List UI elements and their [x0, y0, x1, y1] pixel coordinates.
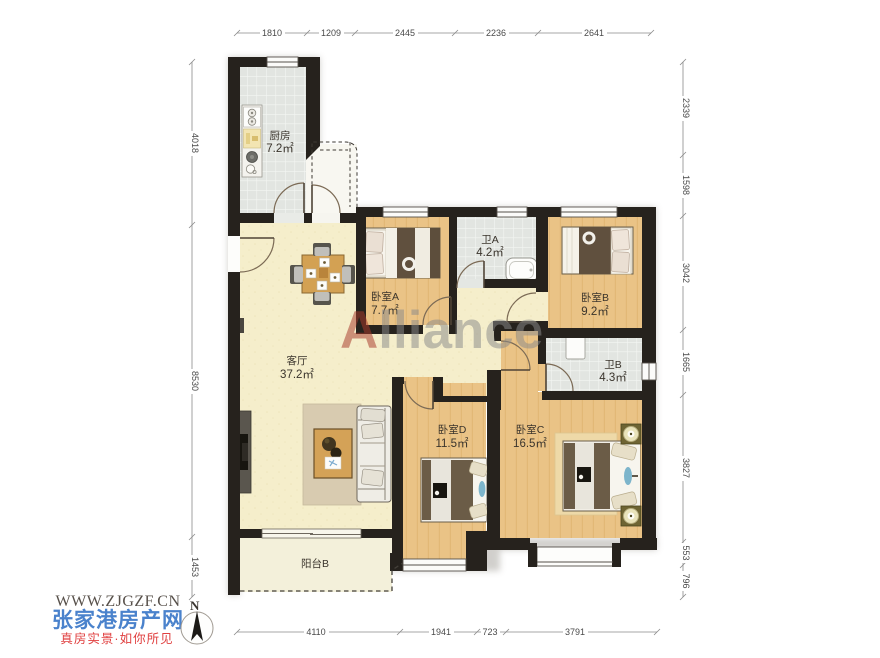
svg-text:厨房: 厨房 [270, 129, 291, 142]
svg-text:卫A: 卫A [481, 234, 499, 246]
svg-text:3827: 3827 [681, 458, 691, 478]
svg-text:1665: 1665 [681, 352, 691, 372]
svg-text:2445: 2445 [395, 28, 415, 38]
svg-text:卧室D: 卧室D [438, 423, 467, 436]
svg-text:4018: 4018 [190, 133, 200, 153]
svg-text:9.2㎡: 9.2㎡ [581, 305, 609, 318]
svg-text:4.2㎡: 4.2㎡ [476, 246, 504, 259]
svg-text:1453: 1453 [190, 557, 200, 577]
svg-text:16.5㎡: 16.5㎡ [513, 437, 547, 450]
svg-text:37.2㎡: 37.2㎡ [280, 368, 314, 381]
svg-text:N: N [190, 598, 200, 613]
svg-text:2236: 2236 [486, 28, 506, 38]
svg-text:张家港房产网: 张家港房产网 [52, 608, 184, 632]
svg-text:卧室B: 卧室B [581, 291, 609, 304]
svg-text:Alliance: Alliance [340, 301, 543, 360]
svg-text:4110: 4110 [306, 627, 325, 637]
svg-text:1810: 1810 [262, 28, 282, 38]
svg-text:7.2㎡: 7.2㎡ [266, 142, 294, 155]
svg-text:1209: 1209 [321, 28, 341, 38]
svg-text:796: 796 [681, 573, 691, 588]
svg-text:3042: 3042 [681, 263, 691, 283]
svg-text:阳台B: 阳台B [301, 557, 329, 570]
svg-text:553: 553 [681, 545, 691, 560]
svg-text:4.3㎡: 4.3㎡ [599, 371, 627, 384]
svg-text:WWW.ZJGZF.CN: WWW.ZJGZF.CN [55, 593, 180, 610]
svg-text:11.5㎡: 11.5㎡ [435, 437, 469, 450]
svg-text:1941: 1941 [431, 627, 451, 637]
svg-text:卫B: 卫B [604, 359, 622, 371]
svg-text:1598: 1598 [681, 175, 691, 195]
svg-text:723: 723 [482, 627, 497, 637]
svg-text:2641: 2641 [584, 28, 604, 38]
svg-text:8530: 8530 [190, 371, 200, 391]
svg-text:3791: 3791 [565, 627, 585, 637]
svg-text:客厅: 客厅 [287, 354, 308, 367]
svg-text:真房实景·如你所见: 真房实景·如你所见 [60, 631, 173, 646]
svg-text:2339: 2339 [681, 98, 691, 118]
svg-text:卧室C: 卧室C [516, 423, 545, 436]
